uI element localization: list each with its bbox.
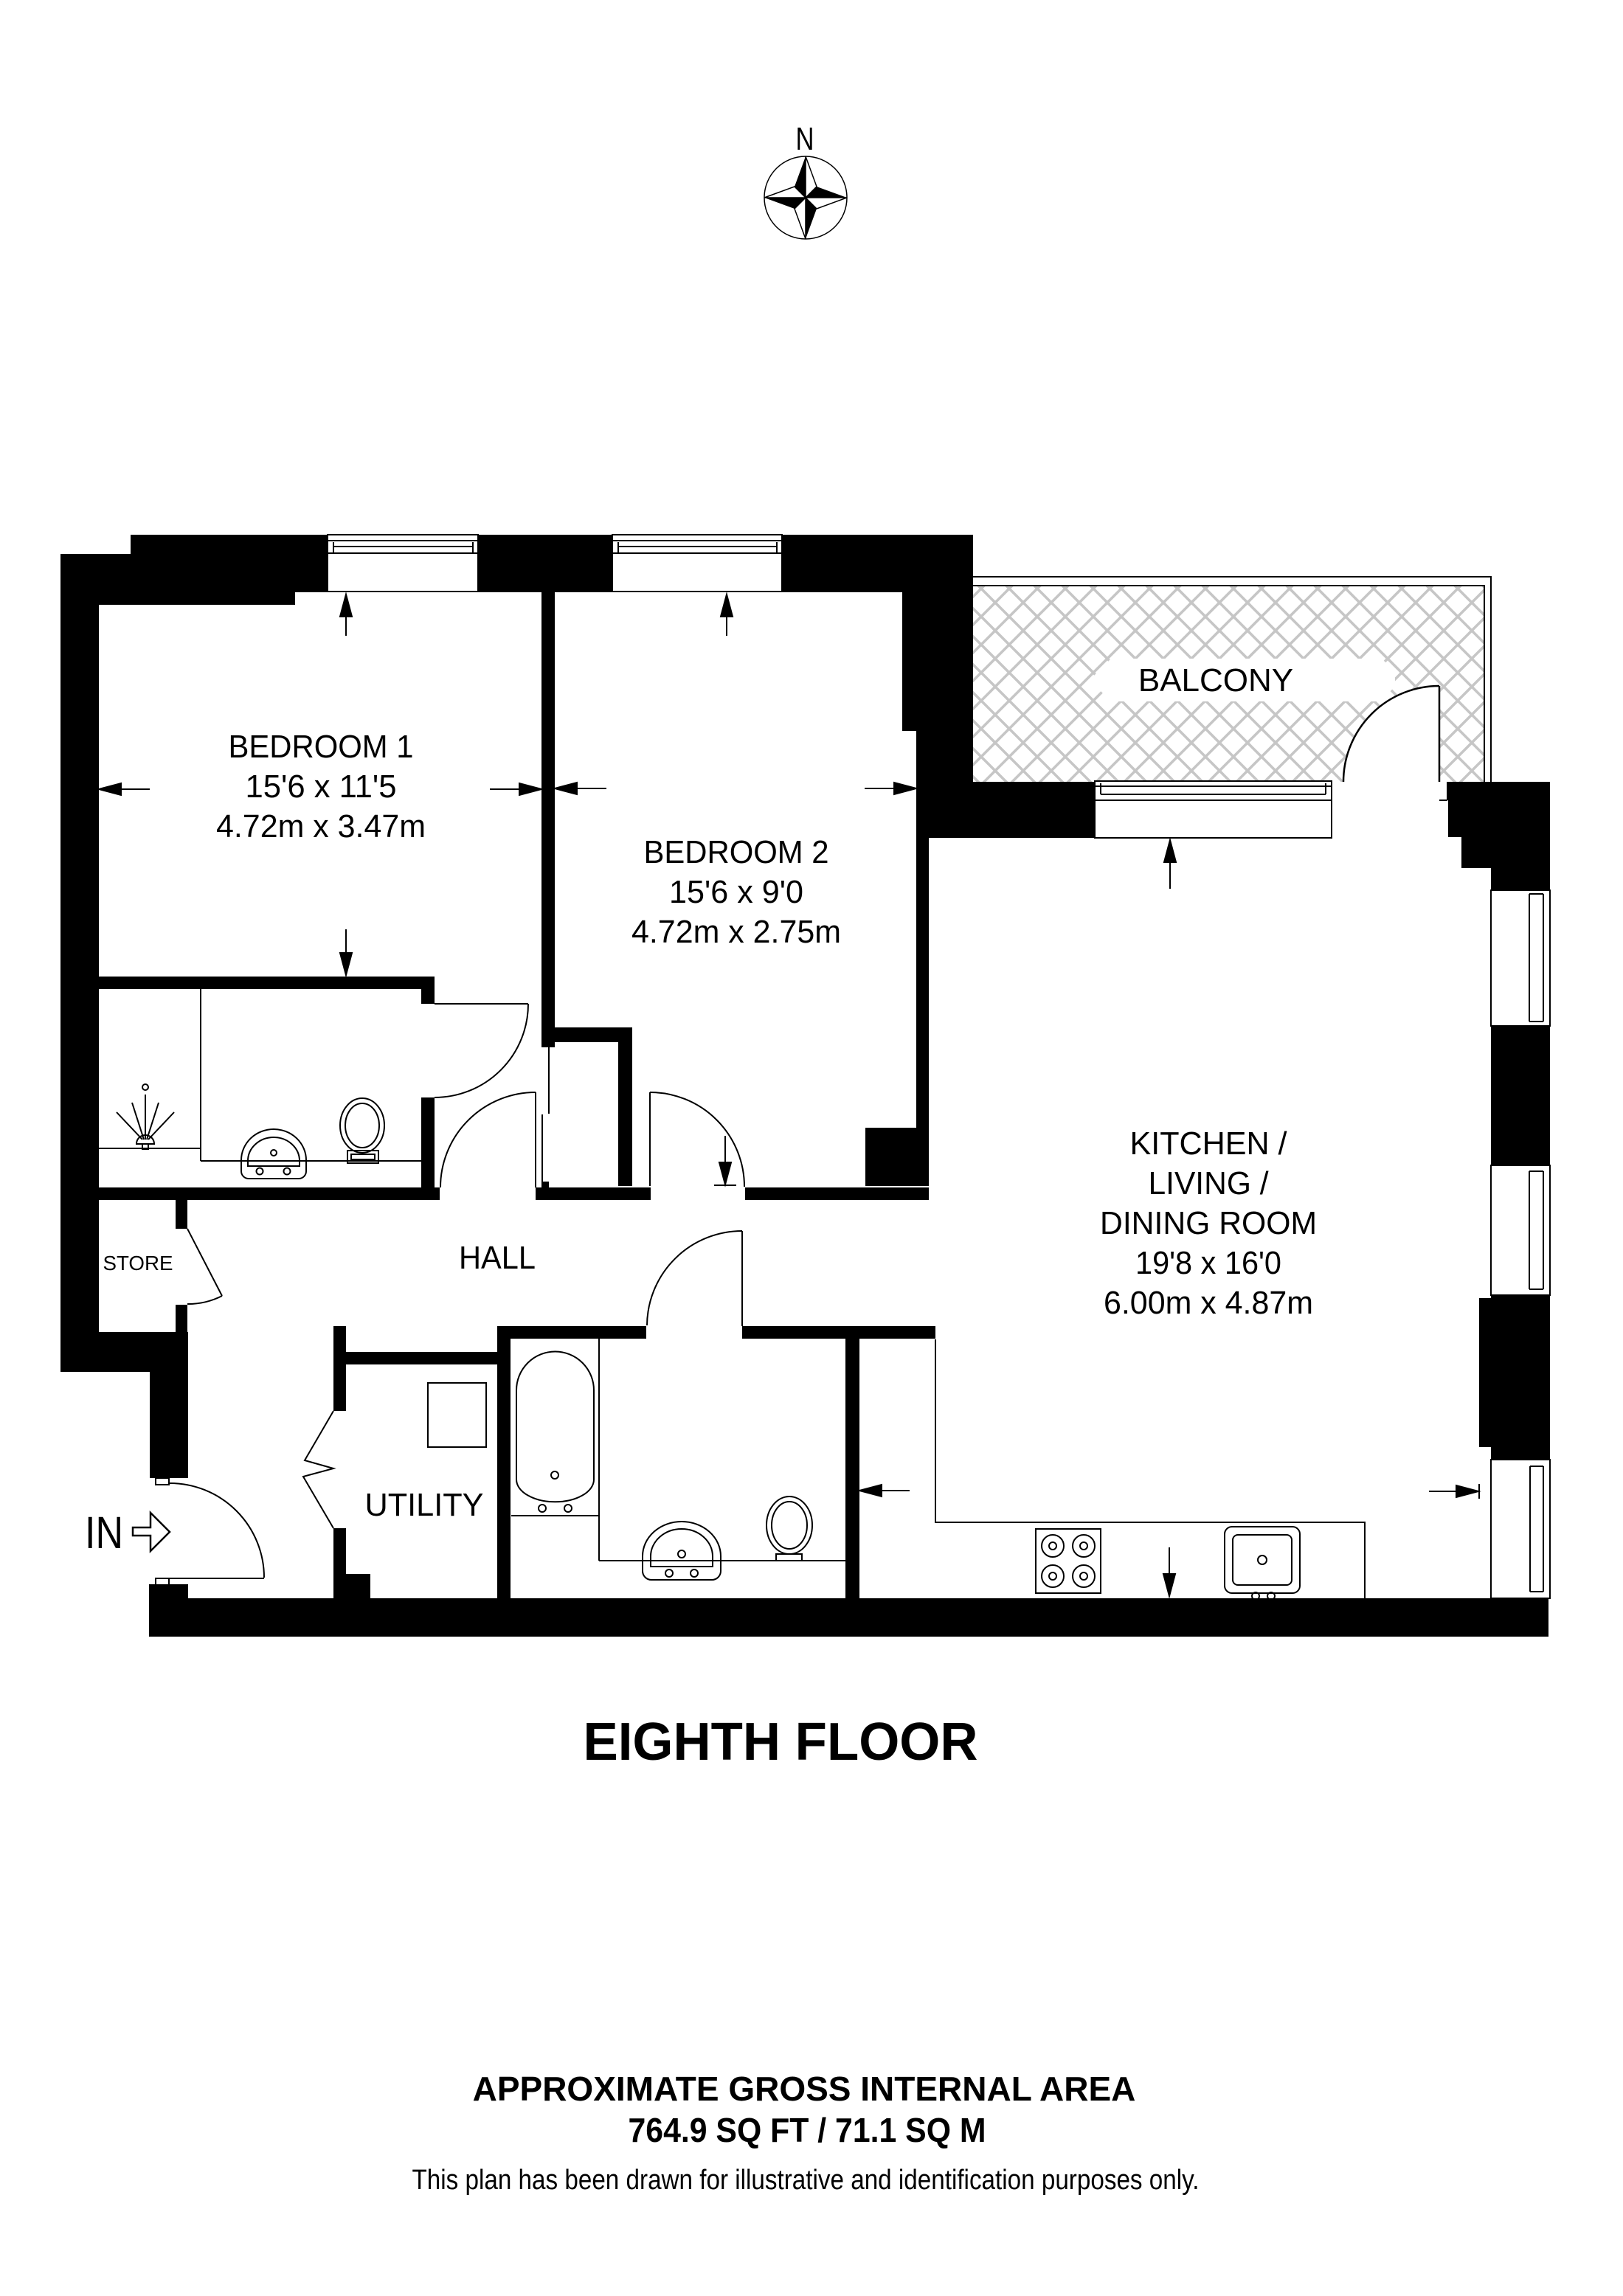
svg-text:LIVING /: LIVING / [1149, 1165, 1270, 1201]
svg-text:DINING ROOM: DINING ROOM [1100, 1205, 1317, 1241]
svg-text:STORE: STORE [103, 1252, 173, 1274]
svg-text:This plan has been drawn for i: This plan has been drawn for illustrativ… [412, 2165, 1200, 2196]
svg-text:IN: IN [85, 1508, 123, 1558]
svg-text:BEDROOM 1: BEDROOM 1 [229, 729, 414, 765]
svg-text:APPROXIMATE GROSS INTERNAL ARE: APPROXIMATE GROSS INTERNAL AREA [473, 2070, 1136, 2108]
svg-text:15'6 x 11'5: 15'6 x 11'5 [246, 769, 397, 805]
svg-text:BEDROOM 2: BEDROOM 2 [644, 834, 829, 870]
svg-text:764.9 SQ FT / 71.1 SQ M: 764.9 SQ FT / 71.1 SQ M [629, 2111, 986, 2149]
svg-text:N: N [796, 121, 814, 157]
svg-text:HALL: HALL [459, 1240, 536, 1276]
svg-text:15'6 x 9'0: 15'6 x 9'0 [669, 874, 803, 910]
svg-text:4.72m x 3.47m: 4.72m x 3.47m [216, 808, 426, 844]
svg-text:6.00m x 4.87m: 6.00m x 4.87m [1104, 1285, 1313, 1321]
svg-text:UTILITY: UTILITY [365, 1487, 484, 1523]
svg-text:4.72m x 2.75m: 4.72m x 2.75m [631, 914, 841, 950]
svg-text:EIGHTH FLOOR: EIGHTH FLOOR [584, 1713, 978, 1772]
svg-text:BALCONY: BALCONY [1138, 662, 1293, 698]
svg-text:19'8 x 16'0: 19'8 x 16'0 [1135, 1245, 1281, 1281]
svg-text:KITCHEN /: KITCHEN / [1130, 1126, 1288, 1162]
